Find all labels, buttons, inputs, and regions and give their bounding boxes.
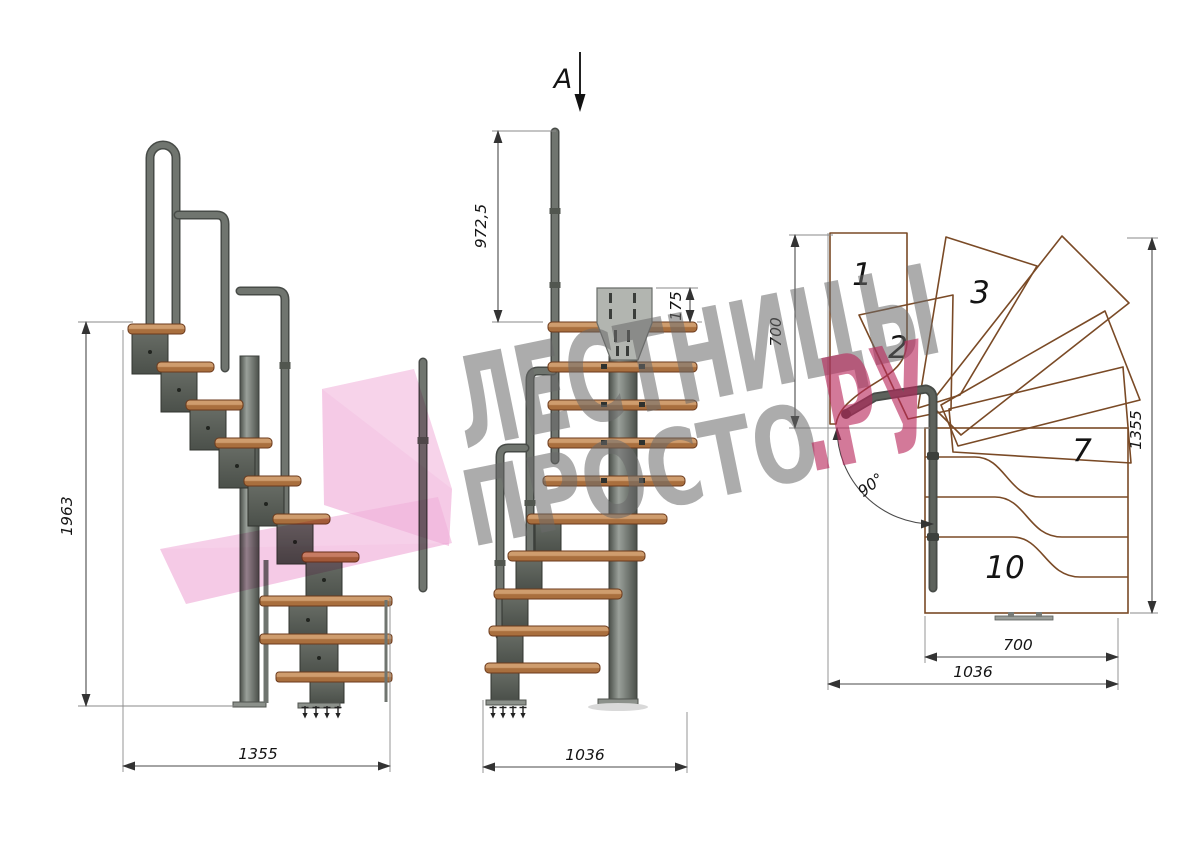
staircase-drawing-canvas: 1963 1355 A — [0, 0, 1200, 849]
side-length-label: 1355 — [238, 745, 277, 763]
dimension-side-height: 1963 — [58, 322, 238, 706]
dimension-plan-length: 1355 — [1127, 238, 1158, 613]
plan-flight-width-label: 700 — [1003, 636, 1033, 654]
section-label: A — [552, 64, 572, 95]
tread-number-10: 10 — [985, 550, 1024, 586]
front-width-label: 1036 — [565, 746, 605, 764]
drawing-page: 1963 1355 A — [0, 0, 1200, 849]
tread-number-7: 7 — [1072, 433, 1092, 469]
section-arrow: A — [552, 52, 586, 112]
plan-length-label: 1355 — [1127, 410, 1145, 449]
side-height-label: 1963 — [58, 496, 76, 535]
handrail-loop — [150, 145, 176, 328]
front-handrail-label: 972,5 — [472, 204, 490, 248]
dimension-front-handrail: 972,5 — [472, 131, 556, 322]
tread-number-3: 3 — [970, 275, 990, 311]
lower-flight-steps — [260, 596, 392, 719]
handrail-segment-2 — [178, 215, 225, 368]
plan-total-width-label: 1036 — [953, 663, 993, 681]
